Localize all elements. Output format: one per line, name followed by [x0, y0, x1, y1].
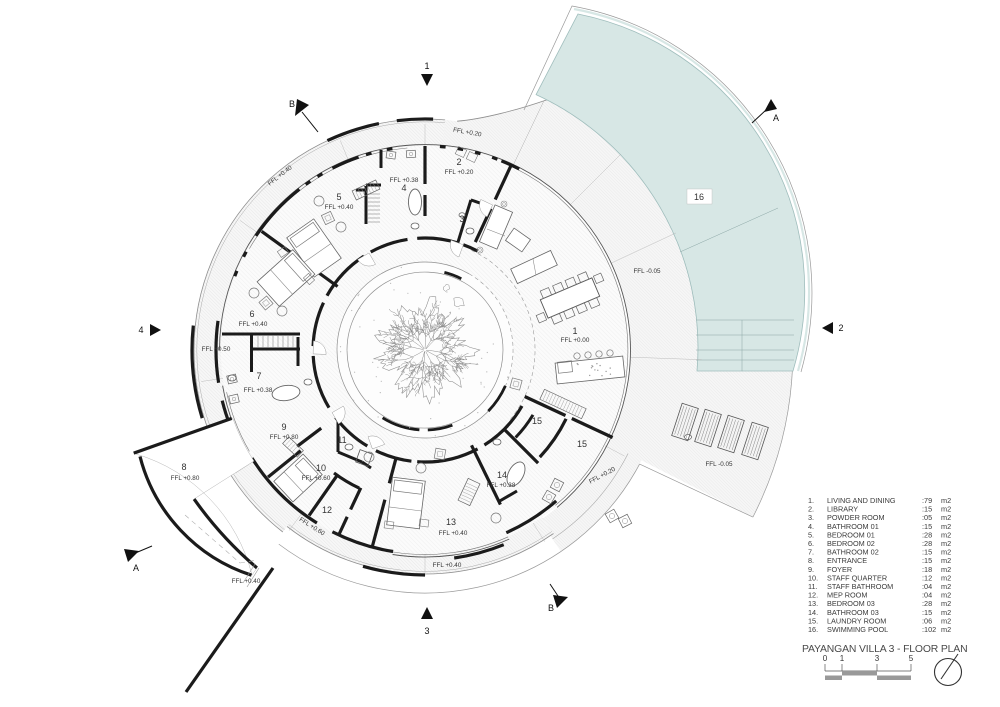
svg-text:0: 0: [823, 654, 828, 663]
svg-text:6: 6: [249, 309, 254, 319]
svg-text:m2: m2: [941, 625, 951, 634]
svg-text:3: 3: [875, 654, 880, 663]
svg-text:FFL +0.50: FFL +0.50: [202, 346, 231, 353]
svg-text:11: 11: [337, 435, 346, 445]
svg-text:FFL +0.40: FFL +0.40: [232, 578, 261, 585]
svg-text:FFL +0.80: FFL +0.80: [171, 475, 200, 482]
svg-text:B: B: [548, 603, 554, 613]
svg-text:FFL +0.40: FFL +0.40: [325, 204, 354, 211]
svg-text:1: 1: [572, 326, 577, 336]
svg-text:1: 1: [840, 654, 845, 663]
svg-text:3: 3: [424, 626, 429, 636]
svg-text:2: 2: [838, 323, 843, 333]
svg-text:5: 5: [909, 654, 914, 663]
svg-text:FFL +0.38: FFL +0.38: [487, 482, 516, 489]
svg-text:FFL +0.38: FFL +0.38: [390, 177, 419, 184]
svg-text:7: 7: [256, 371, 261, 381]
svg-text:16.: 16.: [808, 625, 818, 634]
svg-text:A: A: [133, 563, 139, 573]
svg-text:FFL +0.60: FFL +0.60: [302, 475, 331, 482]
svg-text:SWIMMING POOL: SWIMMING POOL: [827, 625, 888, 634]
svg-text:4: 4: [138, 325, 143, 335]
svg-text:FFL +0.40: FFL +0.40: [439, 530, 468, 537]
svg-text:5: 5: [336, 192, 341, 202]
svg-text:15: 15: [532, 416, 542, 426]
svg-text:9: 9: [281, 422, 286, 432]
svg-text:FFL +0.20: FFL +0.20: [445, 169, 474, 176]
svg-text:13: 13: [446, 517, 456, 527]
svg-text:14: 14: [497, 470, 507, 480]
svg-text:2: 2: [456, 157, 461, 167]
svg-text:1: 1: [424, 61, 429, 71]
svg-text:10: 10: [316, 463, 326, 473]
svg-text:15: 15: [577, 439, 587, 449]
svg-text:8: 8: [181, 462, 186, 472]
svg-text:FFL +0.40: FFL +0.40: [433, 562, 462, 569]
svg-text:A: A: [773, 113, 779, 123]
svg-text:16: 16: [694, 192, 704, 202]
svg-text:FFL -0.05: FFL -0.05: [633, 268, 661, 275]
svg-text:4: 4: [401, 183, 406, 193]
svg-text:12: 12: [322, 505, 332, 515]
svg-text:FFL -0.05: FFL -0.05: [705, 461, 733, 468]
svg-text::102: :102: [922, 625, 936, 634]
svg-text:FFL +0.38: FFL +0.38: [244, 387, 273, 394]
svg-text:3: 3: [459, 214, 464, 224]
svg-text:FFL +0.40: FFL +0.40: [239, 321, 268, 328]
svg-text:FFL +0.80: FFL +0.80: [270, 434, 299, 441]
svg-text:FFL +0.00: FFL +0.00: [561, 337, 590, 344]
svg-text:B: B: [289, 99, 295, 109]
